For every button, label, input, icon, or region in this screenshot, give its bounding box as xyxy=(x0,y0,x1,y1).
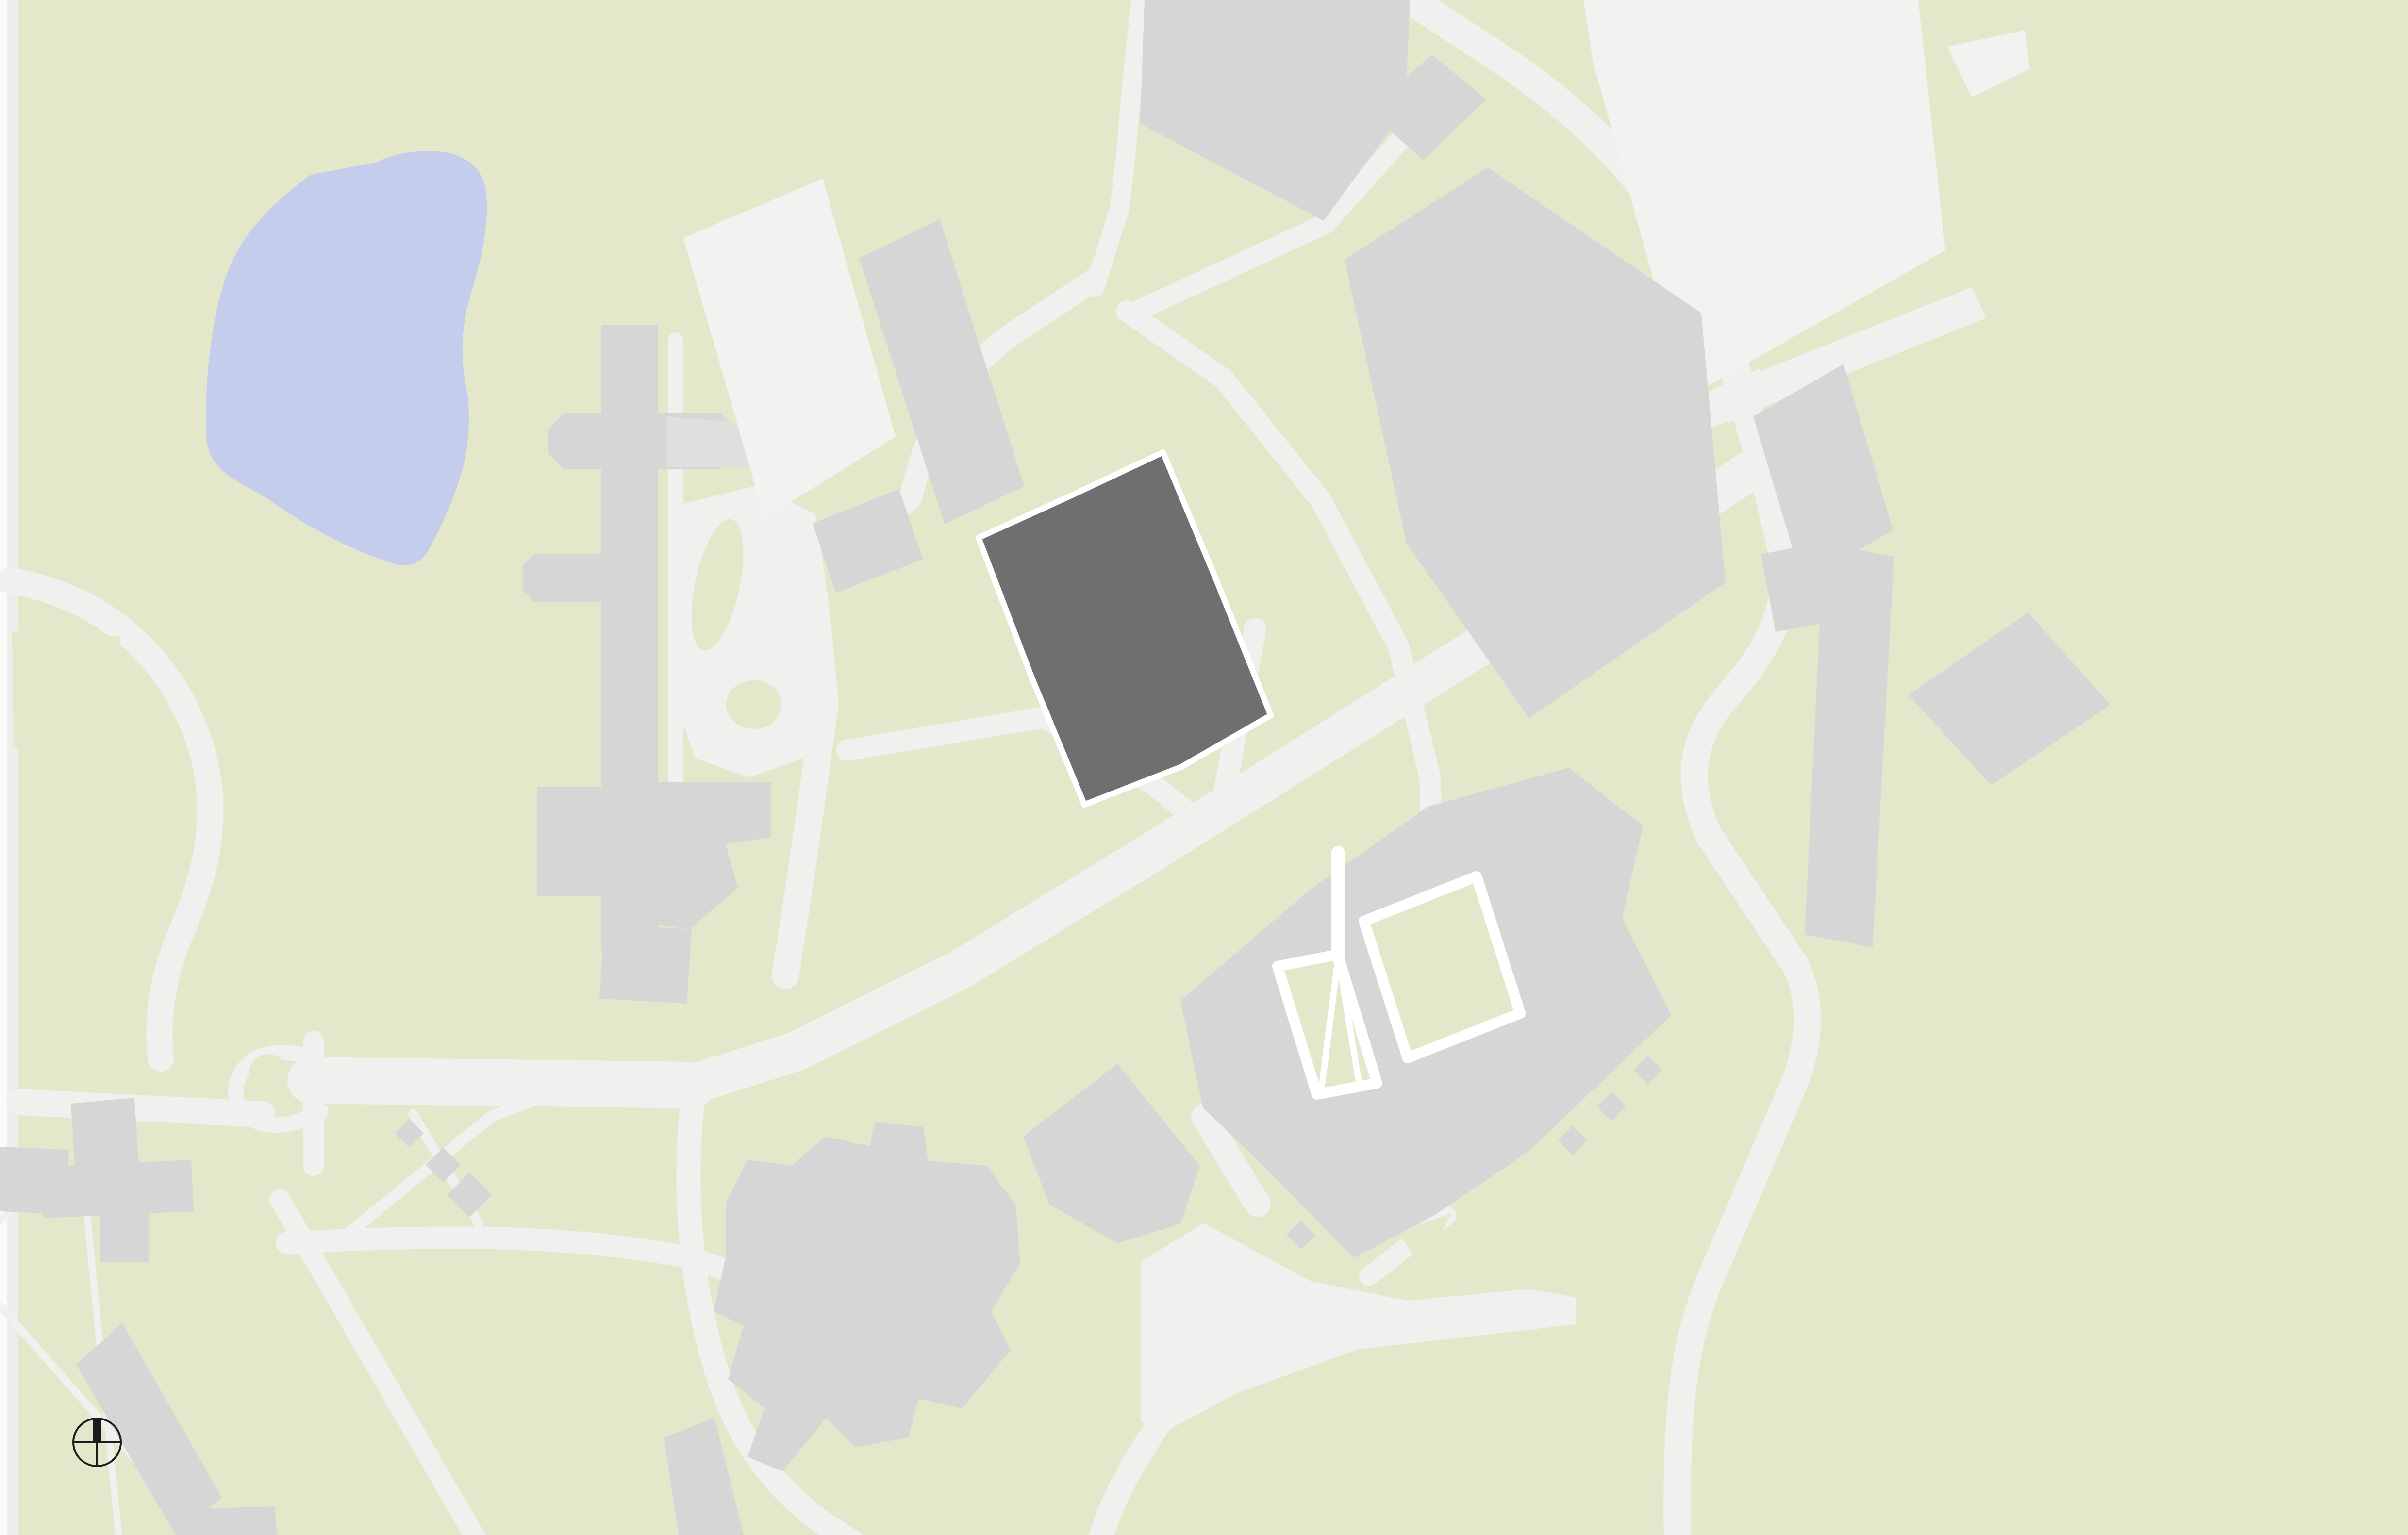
left-edge-road-strip xyxy=(7,0,18,1535)
north-arrow-bar xyxy=(93,1418,101,1442)
site-plan-svg xyxy=(0,0,2408,1535)
building-cross-arm-west xyxy=(523,554,658,602)
building-left-edge xyxy=(0,1147,69,1214)
building-zigzag-elbow xyxy=(100,1211,149,1262)
building-cross-west-pavilion xyxy=(537,787,616,896)
island-hook xyxy=(249,1054,288,1093)
site-plan-map xyxy=(0,0,2408,1535)
building-cross-foot xyxy=(599,924,692,1004)
island-roundabout xyxy=(726,680,781,729)
road-avenue-west-band xyxy=(311,1080,692,1085)
building-zigzag-foot xyxy=(176,1506,277,1535)
road-west-branch xyxy=(19,1102,262,1114)
